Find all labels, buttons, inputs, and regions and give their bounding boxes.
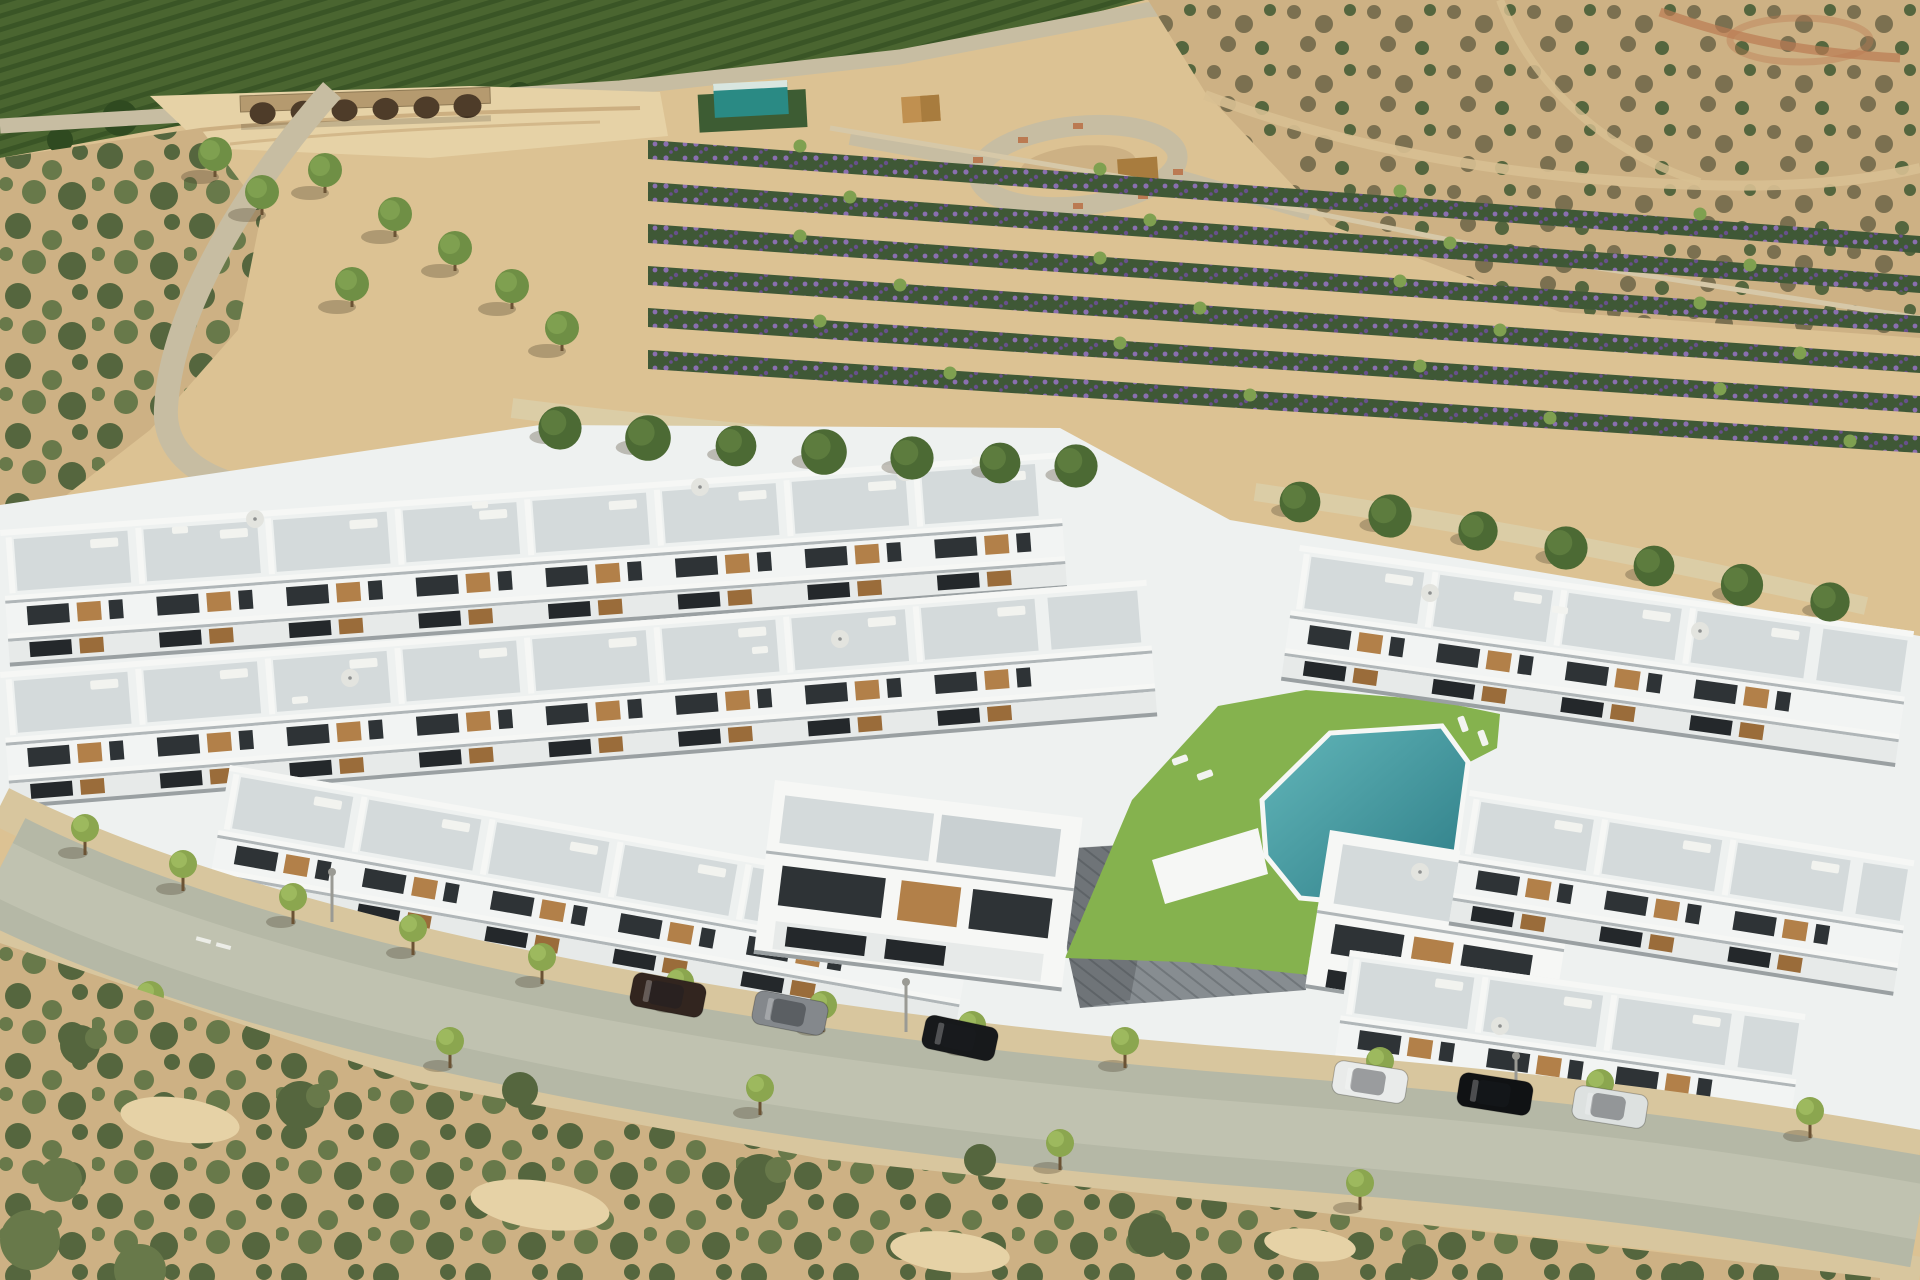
aerial-render-svg [0, 0, 1920, 1280]
front-building [754, 780, 1083, 991]
aerial-photo [0, 0, 1920, 1280]
